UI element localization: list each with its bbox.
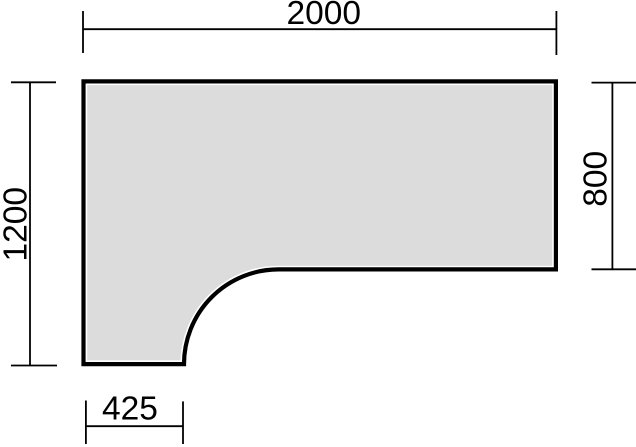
svg-text:1200: 1200 (0, 187, 34, 262)
svg-text:800: 800 (577, 151, 614, 207)
svg-text:425: 425 (102, 390, 158, 427)
svg-text:2000: 2000 (287, 0, 362, 32)
